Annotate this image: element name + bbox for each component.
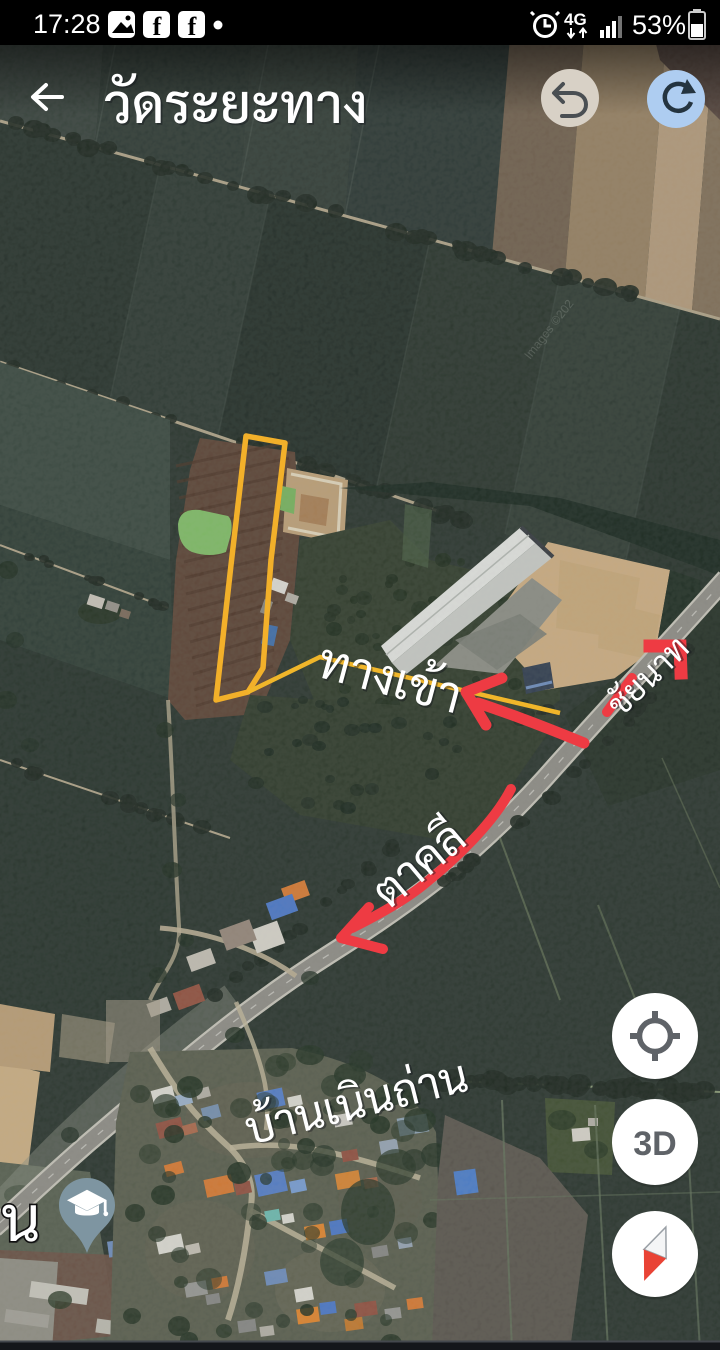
svg-text:3D: 3D — [633, 1125, 676, 1163]
svg-text:53%: 53% — [632, 10, 686, 40]
svg-text:f: f — [188, 12, 197, 41]
svg-text:f: f — [153, 12, 162, 41]
svg-text:17:28: 17:28 — [33, 9, 101, 39]
svg-text:4G: 4G — [564, 10, 587, 29]
